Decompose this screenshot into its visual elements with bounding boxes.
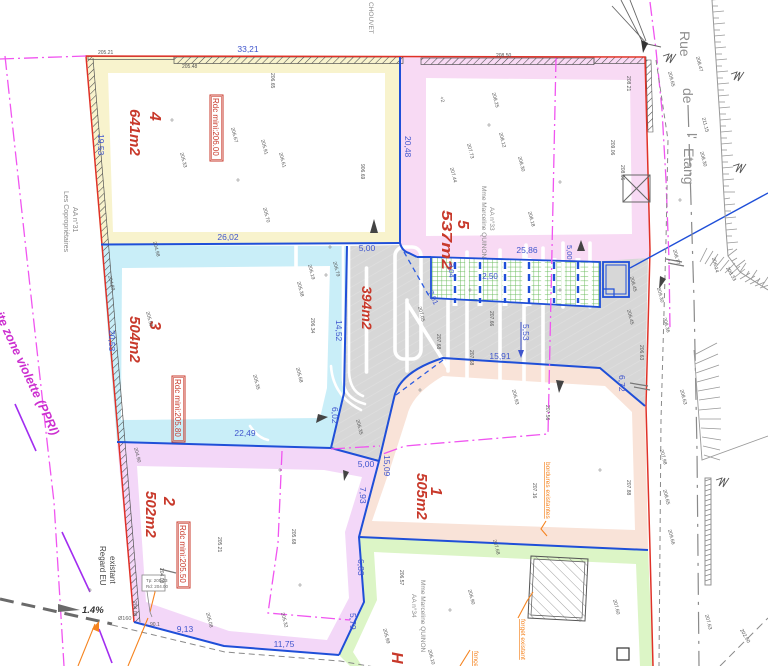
- svg-text:206.34: 206.34: [309, 318, 315, 334]
- svg-text:6,83: 6,83: [356, 559, 366, 576]
- svg-text:forget existant: forget existant: [519, 619, 526, 660]
- svg-text:25,86: 25,86: [516, 245, 538, 255]
- svg-text:3,04: 3,04: [447, 263, 456, 278]
- svg-text:de: de: [680, 88, 696, 104]
- svg-text:2: 2: [160, 496, 177, 506]
- svg-text:CHOUVET: CHOUVET: [367, 2, 374, 34]
- svg-text:204.08: 204.08: [158, 568, 164, 584]
- svg-text:33,21: 33,21: [237, 44, 259, 54]
- svg-text:26,02: 26,02: [217, 232, 239, 242]
- svg-text:2,50: 2,50: [482, 272, 498, 281]
- svg-text:5,00: 5,00: [359, 243, 376, 253]
- svg-text:205.68: 205.68: [290, 529, 296, 545]
- svg-text:208.66: 208.66: [619, 165, 625, 181]
- svg-text:Rdc mini:206.00: Rdc mini:206.00: [211, 98, 220, 156]
- svg-text:90.1: 90.1: [150, 622, 160, 628]
- svg-text:Rd: 204.00: Rd: 204.00: [146, 584, 169, 589]
- svg-text:15,09: 15,09: [382, 455, 392, 477]
- svg-text:5: 5: [454, 220, 471, 230]
- svg-text:Les Copropriétaires: Les Copropriétaires: [62, 191, 69, 253]
- svg-text:6,72: 6,72: [617, 375, 627, 392]
- svg-text:14,52: 14,52: [334, 320, 344, 342]
- svg-text:207.68: 207.68: [435, 334, 441, 350]
- svg-text:Rdc mini:205.50: Rdc mini:205.50: [178, 525, 187, 583]
- svg-text:537m2: 537m2: [438, 210, 455, 271]
- svg-text:AA n°34: AA n°34: [410, 594, 418, 618]
- svg-text:Rdc mini:205.80: Rdc mini:205.80: [173, 379, 182, 437]
- svg-text:504m2: 504m2: [126, 316, 143, 363]
- svg-text:existant: existant: [108, 556, 117, 584]
- svg-text:5,00: 5,00: [358, 459, 375, 469]
- svg-text:15,91: 15,91: [489, 351, 511, 361]
- svg-text:209.06: 209.06: [609, 140, 615, 156]
- svg-text:Regard EU: Regard EU: [98, 546, 107, 586]
- svg-text:22,49: 22,49: [234, 428, 256, 438]
- svg-text:207.68: 207.68: [468, 350, 474, 366]
- svg-text:208.21: 208.21: [625, 76, 631, 92]
- svg-text:19,53: 19,53: [96, 134, 106, 156]
- svg-text:9,13: 9,13: [177, 624, 194, 634]
- svg-text:906.69: 906.69: [359, 164, 365, 180]
- svg-text:1.4%: 1.4%: [82, 605, 104, 616]
- svg-text:208.50: 208.50: [496, 53, 512, 59]
- svg-text:5,53: 5,53: [521, 324, 531, 341]
- svg-text:206.63: 206.63: [638, 345, 644, 361]
- svg-text:AA n°31: AA n°31: [71, 207, 79, 232]
- svg-text:Mme Marceline QUINON: Mme Marceline QUINON: [480, 186, 487, 259]
- svg-text:l': l': [684, 133, 700, 139]
- svg-text:H: H: [388, 652, 405, 664]
- svg-text:Etang: Etang: [681, 148, 697, 185]
- svg-text:207.88: 207.88: [625, 480, 631, 496]
- svg-text:205.48: 205.48: [182, 64, 198, 70]
- svg-text:207.56: 207.56: [544, 405, 550, 421]
- svg-text:5,79: 5,79: [348, 613, 358, 630]
- svg-text:Mme Marceline QUINON: Mme Marceline QUINON: [419, 580, 426, 653]
- svg-text:207.16: 207.16: [531, 483, 537, 499]
- svg-text:505m2: 505m2: [413, 473, 430, 520]
- svg-text:fonçet: fonçet: [472, 651, 479, 666]
- svg-text:394m2: 394m2: [359, 286, 375, 330]
- svg-text:502m2: 502m2: [142, 491, 159, 538]
- svg-text:205.21: 205.21: [98, 50, 114, 56]
- svg-text:207.66: 207.66: [488, 311, 494, 327]
- svg-text:641m2: 641m2: [126, 109, 143, 156]
- svg-text:204.08: 204.08: [131, 601, 137, 617]
- svg-text:206.65: 206.65: [269, 73, 275, 89]
- svg-text:5,00: 5,00: [565, 245, 574, 260]
- svg-text:206.57: 206.57: [398, 570, 404, 586]
- svg-text:AA n°33: AA n°33: [488, 207, 496, 231]
- svg-text:Rue: Rue: [677, 31, 693, 57]
- svg-text:6,02: 6,02: [330, 407, 340, 424]
- svg-text:7,93: 7,93: [358, 487, 368, 504]
- svg-text:20,53: 20,53: [107, 330, 117, 352]
- svg-text:4: 4: [146, 111, 163, 121]
- svg-text:205.21: 205.21: [216, 537, 222, 553]
- svg-text:Ø160: Ø160: [118, 616, 131, 622]
- svg-text:20,48: 20,48: [403, 136, 413, 158]
- svg-text:11,75: 11,75: [274, 639, 295, 649]
- svg-text:bordures existantes: bordures existantes: [544, 462, 551, 519]
